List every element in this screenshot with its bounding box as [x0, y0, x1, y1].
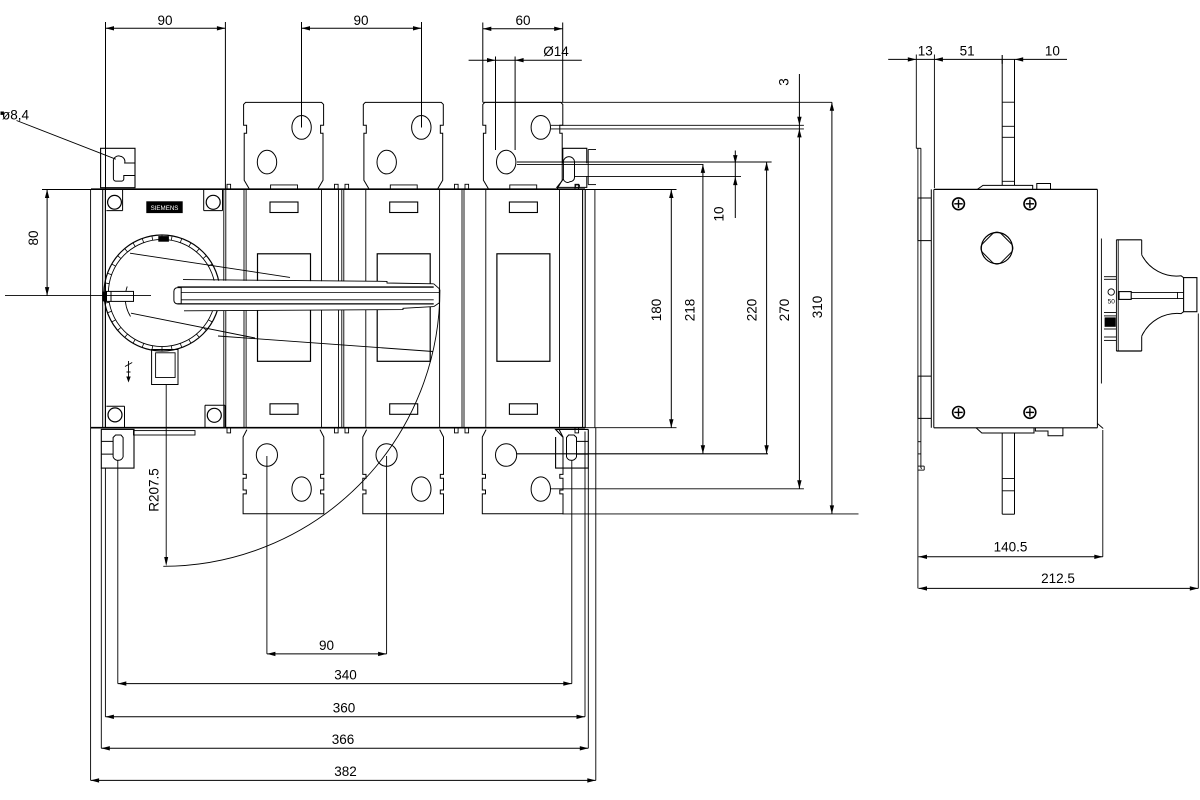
svg-text:218: 218: [683, 299, 698, 322]
svg-text:340: 340: [334, 667, 357, 682]
svg-text:80: 80: [26, 230, 41, 245]
svg-text:90: 90: [319, 638, 334, 653]
svg-text:310: 310: [810, 296, 825, 319]
svg-text:360: 360: [333, 700, 356, 715]
svg-text:90: 90: [157, 13, 172, 28]
svg-text:220: 220: [745, 299, 760, 322]
svg-text:270: 270: [777, 299, 792, 322]
svg-text:13: 13: [918, 44, 933, 59]
svg-text:10: 10: [712, 206, 727, 221]
svg-text:ø8,4: ø8,4: [2, 108, 30, 123]
svg-text:60: 60: [515, 13, 530, 28]
svg-text:382: 382: [334, 764, 357, 779]
svg-text:3: 3: [777, 78, 792, 86]
svg-text:50: 50: [1108, 299, 1116, 306]
svg-text:180: 180: [649, 299, 664, 322]
svg-text:212.5: 212.5: [1041, 571, 1075, 586]
svg-text:R207.5: R207.5: [147, 468, 162, 512]
svg-text:366: 366: [332, 732, 355, 747]
svg-text:140.5: 140.5: [994, 539, 1028, 554]
svg-text:SIEMENS: SIEMENS: [151, 205, 179, 212]
svg-text:90: 90: [353, 13, 368, 28]
svg-text:10: 10: [1045, 44, 1060, 59]
svg-text:51: 51: [960, 44, 975, 59]
svg-text:Ø14: Ø14: [543, 44, 569, 59]
